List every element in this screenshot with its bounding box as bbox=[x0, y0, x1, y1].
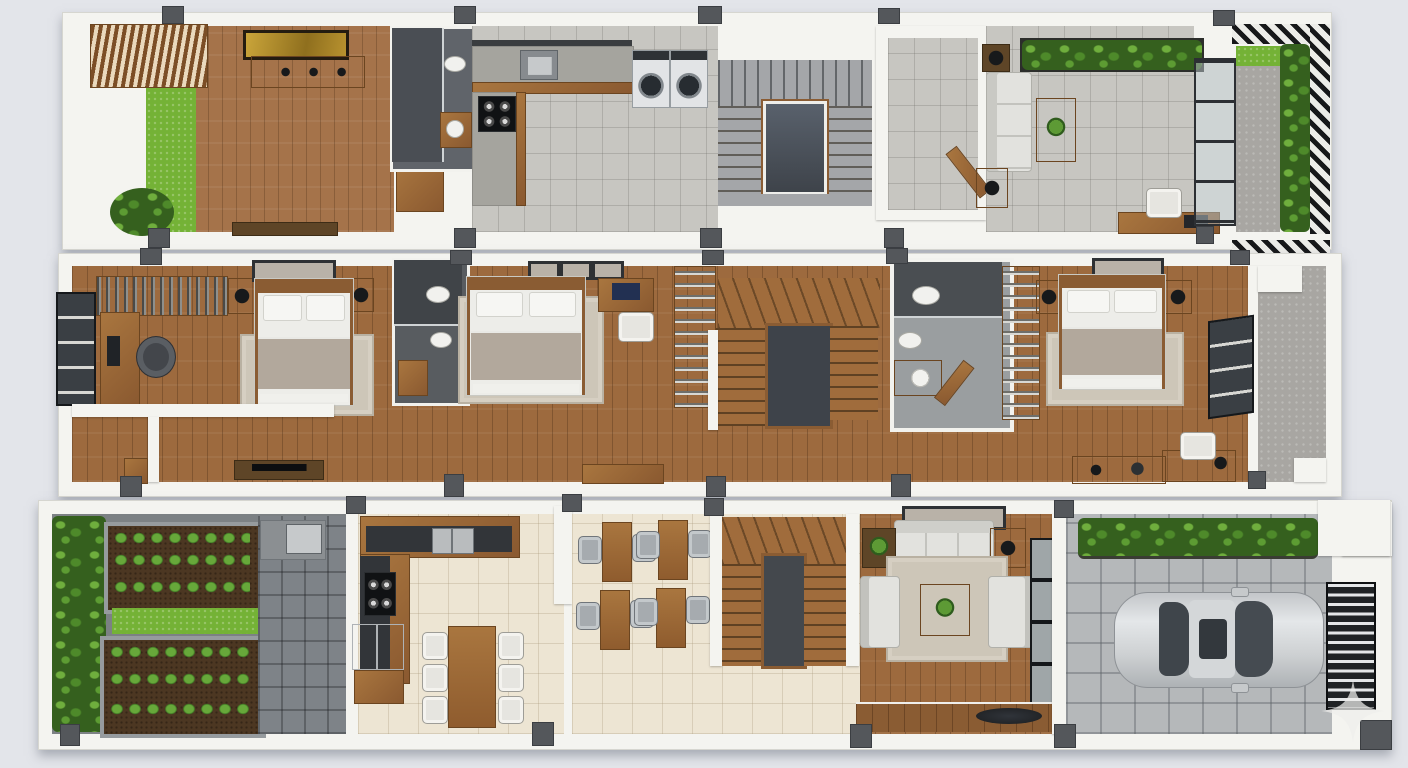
watermark-logo-icon bbox=[1320, 678, 1386, 744]
cafe-table bbox=[658, 520, 688, 580]
floorplan-canvas bbox=[0, 0, 1408, 768]
crop-row bbox=[108, 642, 250, 662]
column bbox=[850, 724, 872, 748]
cafe-chair bbox=[576, 602, 600, 630]
armchair bbox=[988, 576, 1034, 648]
car bbox=[1114, 592, 1324, 688]
crop-row bbox=[112, 552, 250, 568]
column bbox=[532, 722, 554, 746]
stairwell-opening bbox=[764, 556, 804, 666]
column bbox=[346, 496, 366, 514]
cafe-chair bbox=[578, 536, 602, 564]
base-cabinet bbox=[354, 670, 404, 704]
armchair bbox=[860, 576, 900, 648]
partition-wall bbox=[554, 506, 572, 604]
dining-chair bbox=[422, 696, 448, 724]
column bbox=[1054, 724, 1076, 748]
car-mirror bbox=[1231, 587, 1249, 597]
car-windshield bbox=[1235, 601, 1273, 677]
column bbox=[562, 494, 582, 512]
stair-left-flight bbox=[722, 564, 764, 666]
floor-ground bbox=[0, 0, 1408, 768]
cafe-chair bbox=[636, 531, 660, 559]
coffee-table bbox=[920, 584, 970, 636]
crop-row bbox=[108, 696, 250, 722]
car-mirror bbox=[1231, 683, 1249, 693]
carport-roof bbox=[1318, 500, 1390, 556]
garage-hedge bbox=[1078, 518, 1318, 559]
decor-bowl bbox=[976, 708, 1042, 724]
cafe-table bbox=[602, 522, 632, 582]
dining-chair bbox=[498, 632, 524, 660]
crop-row bbox=[112, 576, 250, 598]
crop-row bbox=[108, 668, 250, 690]
garden-grass-strip bbox=[112, 608, 258, 634]
car-rear-window bbox=[1159, 602, 1189, 676]
column bbox=[1054, 500, 1074, 518]
column bbox=[60, 724, 80, 746]
column bbox=[704, 498, 724, 516]
cafe-table bbox=[656, 588, 686, 648]
dining-table bbox=[448, 626, 496, 728]
shrub-border bbox=[52, 516, 106, 732]
garage-wall bbox=[1052, 514, 1066, 734]
cafe-chair bbox=[688, 530, 712, 558]
cafe-chair bbox=[634, 598, 658, 626]
kitchen-sink bbox=[432, 528, 474, 554]
stair-wall bbox=[846, 514, 859, 666]
crop-row bbox=[112, 530, 250, 546]
dining-chair bbox=[422, 632, 448, 660]
stair-right-flight bbox=[804, 564, 846, 666]
cafe-table bbox=[600, 590, 630, 650]
car-sunroof bbox=[1199, 619, 1227, 659]
outdoor-sink bbox=[286, 524, 322, 554]
cooktop bbox=[364, 572, 396, 616]
refrigerator bbox=[352, 624, 404, 670]
cafe-chair bbox=[686, 596, 710, 624]
stair-wall bbox=[710, 514, 722, 666]
dining-chair bbox=[498, 696, 524, 724]
dining-chair bbox=[422, 664, 448, 692]
dining-chair bbox=[498, 664, 524, 692]
